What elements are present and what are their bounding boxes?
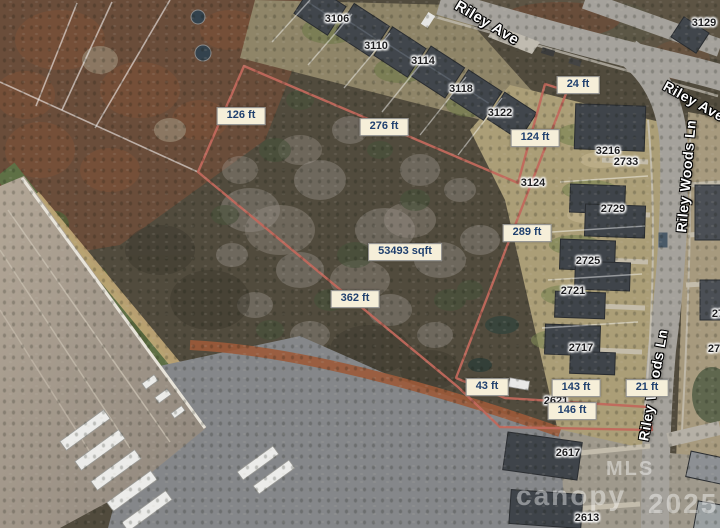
watermark-mls: MLS — [606, 458, 654, 481]
measurement-label-276ft: 276 ft — [360, 118, 409, 136]
watermark-year: 2025 — [648, 488, 718, 520]
house-number: 3124 — [521, 177, 545, 189]
aerial-imagery — [0, 0, 720, 528]
house-number: 3114 — [411, 55, 435, 67]
house-number: 3129 — [692, 17, 716, 29]
satellite-map: Riley Ave Riley Ave Riley Woods Ln Riley… — [0, 0, 720, 528]
house-number-partial: 27 — [712, 308, 720, 320]
house-number: 3106 — [325, 13, 349, 25]
house-number: 2617 — [556, 447, 580, 459]
house-number: 2721 — [561, 285, 585, 297]
measurement-label-24ft: 24 ft — [557, 76, 600, 94]
measurement-label-126ft: 126 ft — [217, 107, 266, 125]
house-number: 2613 — [575, 512, 599, 524]
house-number: 3110 — [364, 40, 388, 52]
measurement-label-143ft: 143 ft — [552, 379, 601, 397]
house-number: 2725 — [576, 255, 600, 267]
house-number: 3118 — [449, 83, 473, 95]
area-label: 53493 sqft — [368, 243, 442, 261]
house-number: 2733 — [614, 156, 638, 168]
house-number-partial: 271 — [708, 343, 720, 355]
measurement-label-146ft: 146 ft — [548, 402, 597, 420]
house-number: 3122 — [488, 107, 512, 119]
measurement-label-289ft: 289 ft — [503, 224, 552, 242]
measurement-label-21ft: 21 ft — [626, 379, 669, 397]
house-number: 2729 — [601, 203, 625, 215]
watermark-brand: canopy — [516, 480, 626, 512]
house-number: 2717 — [569, 342, 593, 354]
measurement-label-124ft: 124 ft — [511, 129, 560, 147]
measurement-label-43ft: 43 ft — [466, 378, 509, 396]
measurement-label-362ft: 362 ft — [331, 290, 380, 308]
